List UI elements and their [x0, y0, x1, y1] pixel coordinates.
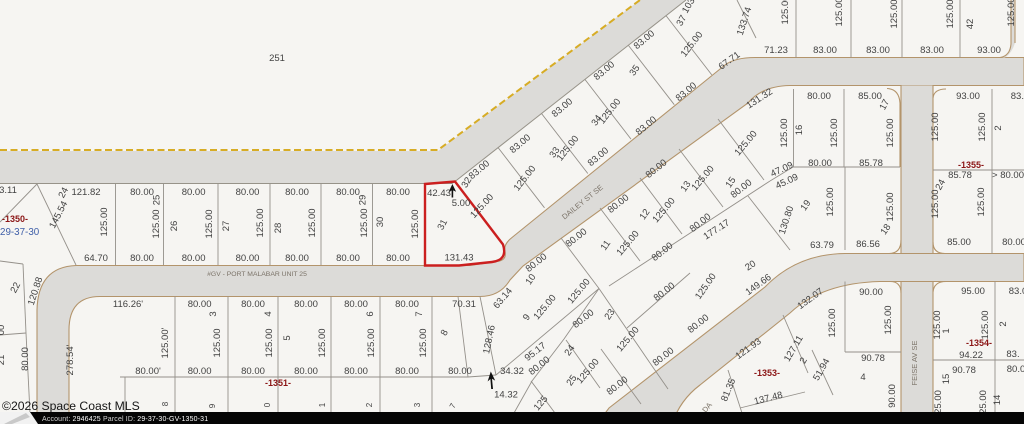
svg-text:80.00: 80.00: [182, 187, 206, 198]
svg-text:125.00: 125.00: [976, 187, 987, 216]
svg-text:80.00: 80.00: [285, 253, 309, 264]
svg-text:25: 25: [152, 195, 163, 206]
svg-text:85.78: 85.78: [859, 158, 883, 169]
svg-text:> 80.00: > 80.00: [992, 170, 1024, 181]
svg-text:9: 9: [208, 403, 217, 408]
svg-text:90.00: 90.00: [859, 287, 883, 298]
svg-text:80.00: 80.00: [395, 299, 419, 310]
svg-text:7: 7: [414, 311, 425, 316]
svg-text:125.00: 125.00: [307, 208, 318, 237]
svg-text:80.00: 80.00: [236, 253, 260, 264]
svg-text:80.00: 80.00: [386, 187, 410, 198]
svg-text:6: 6: [365, 311, 376, 316]
svg-text:85.00: 85.00: [858, 91, 882, 102]
svg-text:80.00: 80.00: [182, 253, 206, 264]
svg-text:125.00: 125.00: [212, 328, 223, 357]
svg-text:80.0: 80.0: [1007, 364, 1024, 375]
svg-text:3.11: 3.11: [0, 185, 17, 196]
svg-text:93.00: 93.00: [977, 45, 1001, 56]
svg-text:1: 1: [318, 402, 327, 407]
svg-text:0: 0: [263, 402, 272, 407]
svg-text:80.00: 80.00: [130, 187, 154, 198]
svg-text:-1354-: -1354-: [966, 338, 992, 348]
svg-text:121.82: 121.82: [71, 187, 100, 198]
svg-text:125.00: 125.00: [977, 112, 988, 141]
svg-text:125.00: 125.00: [885, 118, 896, 147]
svg-text:94.22: 94.22: [959, 350, 983, 361]
svg-text:-1353-: -1353-: [754, 368, 780, 378]
svg-text:125.00: 125.00: [930, 189, 941, 218]
svg-text:125.00: 125.00: [1006, 0, 1017, 27]
svg-text:83.: 83.: [1006, 349, 1019, 360]
svg-text:70.31: 70.31: [452, 299, 476, 310]
svg-text:125.00: 125.00: [359, 208, 370, 237]
svg-text:125.00: 125.00: [889, 0, 900, 29]
svg-text:80.00: 80.00: [807, 91, 831, 102]
svg-text:15: 15: [941, 374, 952, 385]
svg-text:90.78: 90.78: [861, 353, 885, 364]
svg-text:125.00': 125.00': [160, 327, 171, 358]
svg-text:00: 00: [0, 325, 7, 336]
svg-text:2: 2: [993, 125, 1004, 130]
svg-text:125.00: 125.00: [418, 328, 429, 357]
svg-text:80.00: 80.00: [241, 299, 265, 310]
svg-text:80.00: 80.00: [344, 366, 368, 377]
svg-text:90.78: 90.78: [952, 365, 976, 376]
svg-text:80.00: 80.00: [344, 299, 368, 310]
svg-text:125.00: 125.00: [264, 328, 275, 357]
svg-text:125.00: 125.00: [945, 0, 956, 29]
svg-text:125.00: 125.00: [932, 310, 943, 339]
svg-text:63.79: 63.79: [810, 240, 834, 251]
svg-text:131.43: 131.43: [444, 253, 473, 264]
svg-text:-1351-: -1351-: [265, 378, 291, 388]
svg-text:1: 1: [941, 328, 952, 333]
svg-text:80.00': 80.00': [135, 366, 161, 377]
svg-text:125.00: 125.00: [151, 209, 162, 238]
svg-text:125.00: 125.00: [255, 208, 266, 237]
svg-text:2: 2: [998, 321, 1009, 326]
svg-text:64.70: 64.70: [84, 253, 108, 264]
svg-text:125.00: 125.00: [780, 0, 791, 25]
svg-text:95.00: 95.00: [961, 286, 985, 297]
svg-text:85.00: 85.00: [947, 237, 971, 248]
svg-text:4: 4: [263, 311, 274, 316]
svg-text:71.23: 71.23: [764, 45, 788, 56]
svg-text:25.00: 25.00: [933, 390, 944, 414]
svg-text:21: 21: [0, 355, 7, 366]
svg-text:125.00: 125.00: [99, 207, 110, 236]
svg-text:80.00: 80.00: [1002, 237, 1024, 248]
svg-text:125.00: 125.00: [317, 328, 328, 357]
svg-text:80.00: 80.00: [188, 299, 212, 310]
svg-text:93.00: 93.00: [956, 91, 980, 102]
svg-text:90.00: 90.00: [887, 384, 898, 408]
svg-text:116.26': 116.26': [113, 299, 143, 310]
svg-text:27: 27: [221, 221, 232, 232]
svg-text:2: 2: [365, 402, 374, 407]
svg-text:278.54': 278.54': [65, 344, 76, 375]
svg-text:80.00: 80.00: [130, 253, 154, 264]
svg-text:16: 16: [794, 125, 805, 136]
svg-text:80.00: 80.00: [285, 187, 309, 198]
svg-text:80.00: 80.00: [395, 366, 419, 377]
svg-text:5.00: 5.00: [452, 198, 471, 209]
svg-text:28: 28: [273, 223, 284, 234]
svg-text:8: 8: [161, 401, 170, 406]
svg-text:125.00: 125.00: [829, 118, 840, 147]
svg-text:Account: 2946425 Parcel ID:: Account: 2946425 Parcel ID: 29-37-30-GV-…: [42, 416, 208, 423]
svg-text:3: 3: [413, 402, 422, 407]
svg-text:125.00: 125.00: [366, 328, 377, 357]
svg-text:#GV - PORT MALABAR UNIT 25: #GV - PORT MALABAR UNIT 25: [207, 271, 307, 278]
svg-text:83.00: 83.00: [866, 45, 890, 56]
svg-text:125.00: 125.00: [825, 187, 836, 216]
svg-text:251: 251: [269, 53, 285, 64]
svg-text:80.00: 80.00: [808, 158, 832, 169]
svg-text:80.00: 80.00: [294, 299, 318, 310]
svg-text:125.00: 125.00: [834, 0, 845, 27]
svg-text:80.00: 80.00: [386, 253, 410, 264]
svg-text:80.00: 80.00: [236, 187, 260, 198]
svg-text:125.00: 125.00: [885, 192, 896, 221]
svg-text:42: 42: [965, 19, 976, 30]
svg-text:30: 30: [375, 217, 386, 228]
svg-text:125.00: 125.00: [980, 310, 991, 339]
svg-text:42.43: 42.43: [427, 188, 451, 199]
svg-text:86.56: 86.56: [856, 239, 880, 250]
svg-text:125.00: 125.00: [930, 112, 941, 141]
svg-text:125.00: 125.00: [779, 118, 790, 147]
svg-text:14: 14: [992, 395, 1003, 406]
svg-text:-1355-: -1355-: [958, 160, 984, 170]
svg-text:80.00: 80.00: [336, 187, 360, 198]
svg-text:4: 4: [860, 372, 865, 383]
svg-text:83.00: 83.00: [813, 45, 837, 56]
svg-text:80.00: 80.00: [241, 366, 265, 377]
svg-text:29: 29: [358, 195, 369, 206]
svg-text:80.00: 80.00: [448, 366, 472, 377]
svg-text:125.00: 125.00: [883, 305, 894, 334]
svg-text:25.00: 25.00: [978, 390, 989, 414]
svg-text:80.00: 80.00: [336, 253, 360, 264]
svg-text:14.32: 14.32: [494, 390, 518, 401]
svg-text:125.00: 125.00: [410, 209, 421, 238]
svg-text:5: 5: [282, 335, 293, 340]
svg-text:85.78: 85.78: [948, 170, 972, 181]
svg-text:-1350-: -1350-: [2, 214, 28, 224]
svg-text:©2026 Space Coast MLS: ©2026 Space Coast MLS: [2, 399, 140, 413]
svg-text:3: 3: [208, 311, 219, 316]
svg-text:80.00: 80.00: [20, 347, 31, 371]
svg-text:125.00: 125.00: [827, 308, 838, 337]
svg-text:FEISE AV SE: FEISE AV SE: [910, 341, 919, 386]
svg-text:83.0: 83.0: [1009, 286, 1024, 297]
svg-text:83.00: 83.00: [920, 45, 944, 56]
svg-text:34.32: 34.32: [500, 366, 524, 377]
svg-text:26: 26: [169, 221, 180, 232]
svg-text:29-37-30: 29-37-30: [0, 227, 40, 238]
svg-text:80.00: 80.00: [294, 366, 318, 377]
svg-text:83.0: 83.0: [1011, 91, 1024, 102]
svg-text:80.00: 80.00: [188, 366, 212, 377]
svg-text:125.00: 125.00: [204, 209, 215, 238]
